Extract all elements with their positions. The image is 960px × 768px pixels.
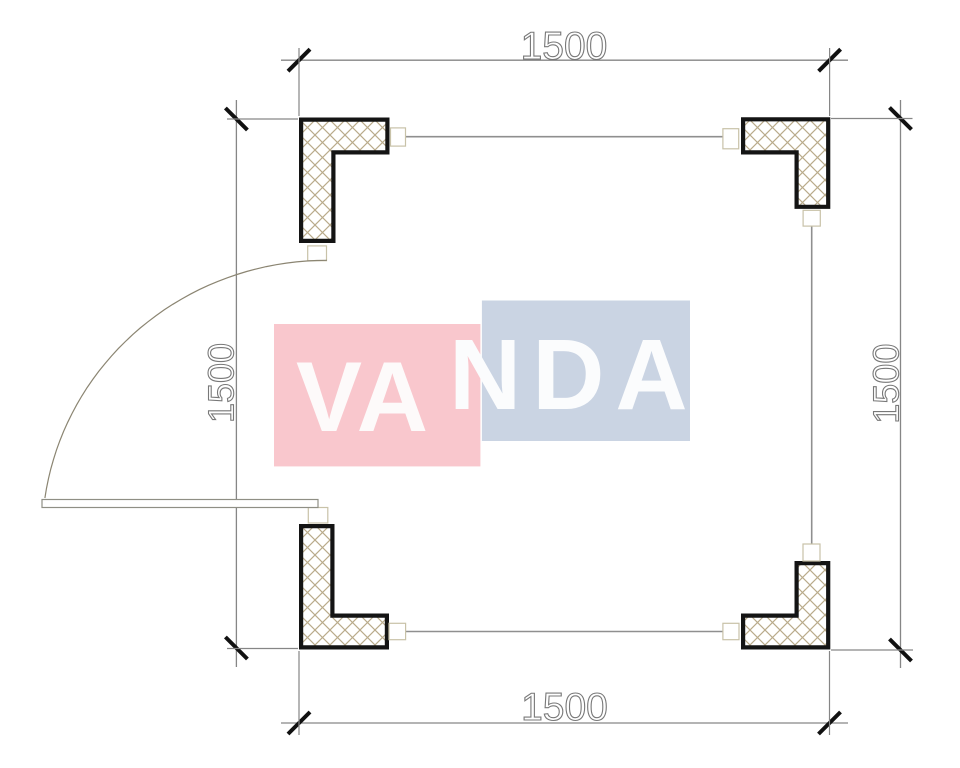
svg-text:1500: 1500 [201, 343, 242, 423]
svg-text:1500: 1500 [865, 344, 906, 424]
svg-text:VA: VA [296, 341, 430, 452]
svg-text:1500: 1500 [521, 25, 608, 68]
svg-text:1500: 1500 [521, 686, 608, 729]
svg-text:NDA: NDA [449, 319, 699, 431]
